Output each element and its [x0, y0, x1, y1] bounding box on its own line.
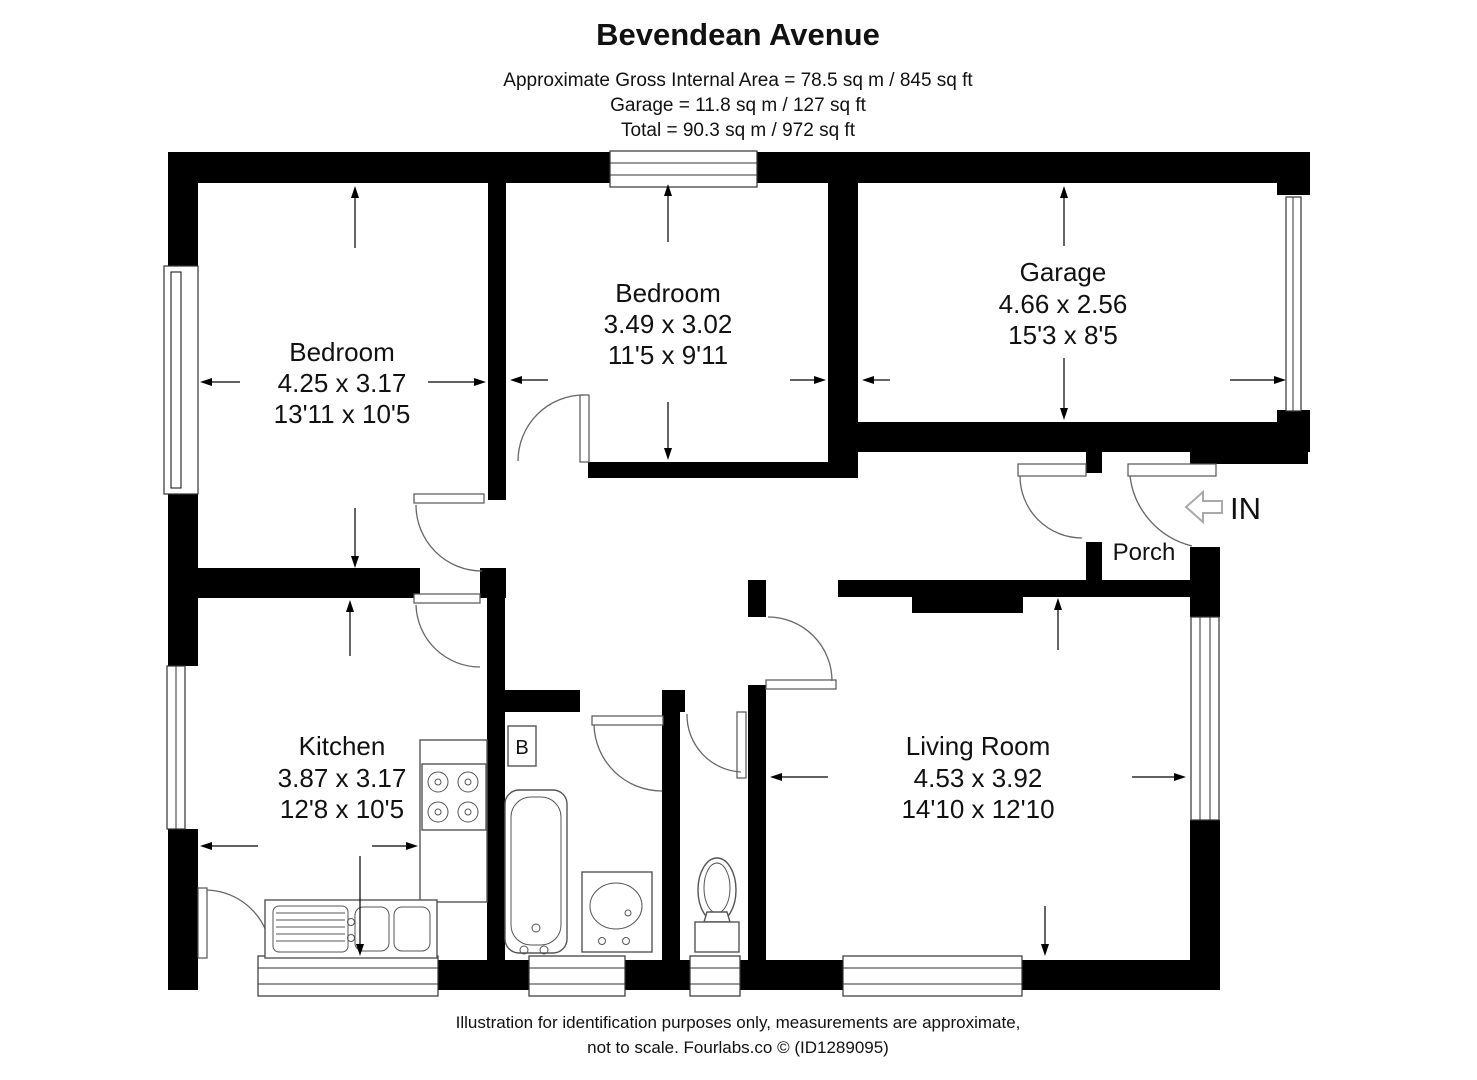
room-label-living-room: Living Room 4.53 x 3.92 14'10 x 12'10 [901, 731, 1054, 824]
svg-text:Bedroom: Bedroom [289, 337, 395, 367]
footer-line-2: not to scale. Fourlabs.co © (ID1289095) [587, 1038, 889, 1057]
toilet [695, 858, 739, 952]
bathroom-bottom-window [529, 956, 625, 996]
area-line-2: Garage = 11.8 sq m / 127 sq ft [610, 95, 866, 116]
room-label-bedroom-2: Bedroom 3.49 x 3.02 11'5 x 9'11 [604, 278, 733, 370]
kitchen-bottom-window [258, 956, 438, 996]
svg-text:4.53 x 3.92: 4.53 x 3.92 [914, 763, 1043, 793]
living-bottom-window [843, 956, 1022, 996]
floorplan-page: Bevendean Avenue Approximate Gross Inter… [0, 0, 1477, 1080]
walls [168, 152, 1310, 990]
entrance-in-arrow-icon [1186, 492, 1222, 522]
bedroom1-door [414, 494, 484, 571]
footer-line-1: Illustration for identification purposes… [456, 1013, 1021, 1032]
svg-text:4.66 x 2.56: 4.66 x 2.56 [999, 289, 1128, 319]
bedroom2-top-window [610, 151, 757, 187]
living-right-window [1191, 617, 1219, 820]
svg-text:13'11 x 10'5: 13'11 x 10'5 [274, 399, 411, 429]
kitchen-door [414, 594, 480, 667]
wash-basin [582, 872, 652, 952]
boiler-label: B [515, 737, 528, 759]
in-label: IN [1230, 491, 1261, 526]
svg-text:4.25 x 3.17: 4.25 x 3.17 [278, 368, 407, 398]
room-label-kitchen: Kitchen 3.87 x 3.17 12'8 x 10'5 [278, 731, 407, 824]
svg-text:Bedroom: Bedroom [615, 278, 721, 308]
bathroom-door [592, 716, 663, 791]
kitchen-sink [265, 900, 437, 958]
svg-text:Garage: Garage [1020, 257, 1107, 287]
bath [505, 790, 567, 954]
svg-text:12'8 x 10'5: 12'8 x 10'5 [280, 794, 404, 824]
bedroom1-left-window [164, 266, 198, 494]
svg-text:Kitchen: Kitchen [299, 731, 386, 761]
svg-text:3.49 x 3.02: 3.49 x 3.02 [604, 309, 733, 339]
hob [422, 764, 486, 830]
svg-text:15'3 x 8'5: 15'3 x 8'5 [1008, 320, 1118, 350]
living-room-door [766, 617, 836, 689]
kitchen-left-window [167, 666, 185, 829]
area-line-1: Approximate Gross Internal Area = 78.5 s… [503, 70, 973, 91]
kitchen-back-door [198, 888, 271, 958]
garage-door-opening [1286, 197, 1301, 411]
room-label-bedroom-1: Bedroom 4.25 x 3.17 13'11 x 10'5 [274, 337, 411, 429]
svg-text:3.87 x 3.17: 3.87 x 3.17 [278, 763, 407, 793]
floorplan-drawing: Bevendean Avenue Approximate Gross Inter… [0, 0, 1477, 1080]
page-title: Bevendean Avenue [596, 17, 880, 52]
bedroom2-door [518, 395, 589, 462]
area-line-3: Total = 90.3 sq m / 972 sq ft [621, 120, 856, 141]
porch-label: Porch [1113, 539, 1176, 566]
wc-bottom-window [690, 956, 740, 996]
wc-door [687, 712, 746, 778]
hall-porch-door [1018, 464, 1086, 538]
svg-text:14'10 x 12'10: 14'10 x 12'10 [901, 794, 1054, 824]
room-label-garage: Garage 4.66 x 2.56 15'3 x 8'5 [999, 257, 1128, 350]
svg-text:Living Room: Living Room [906, 731, 1051, 761]
svg-text:11'5 x 9'11: 11'5 x 9'11 [608, 340, 728, 370]
